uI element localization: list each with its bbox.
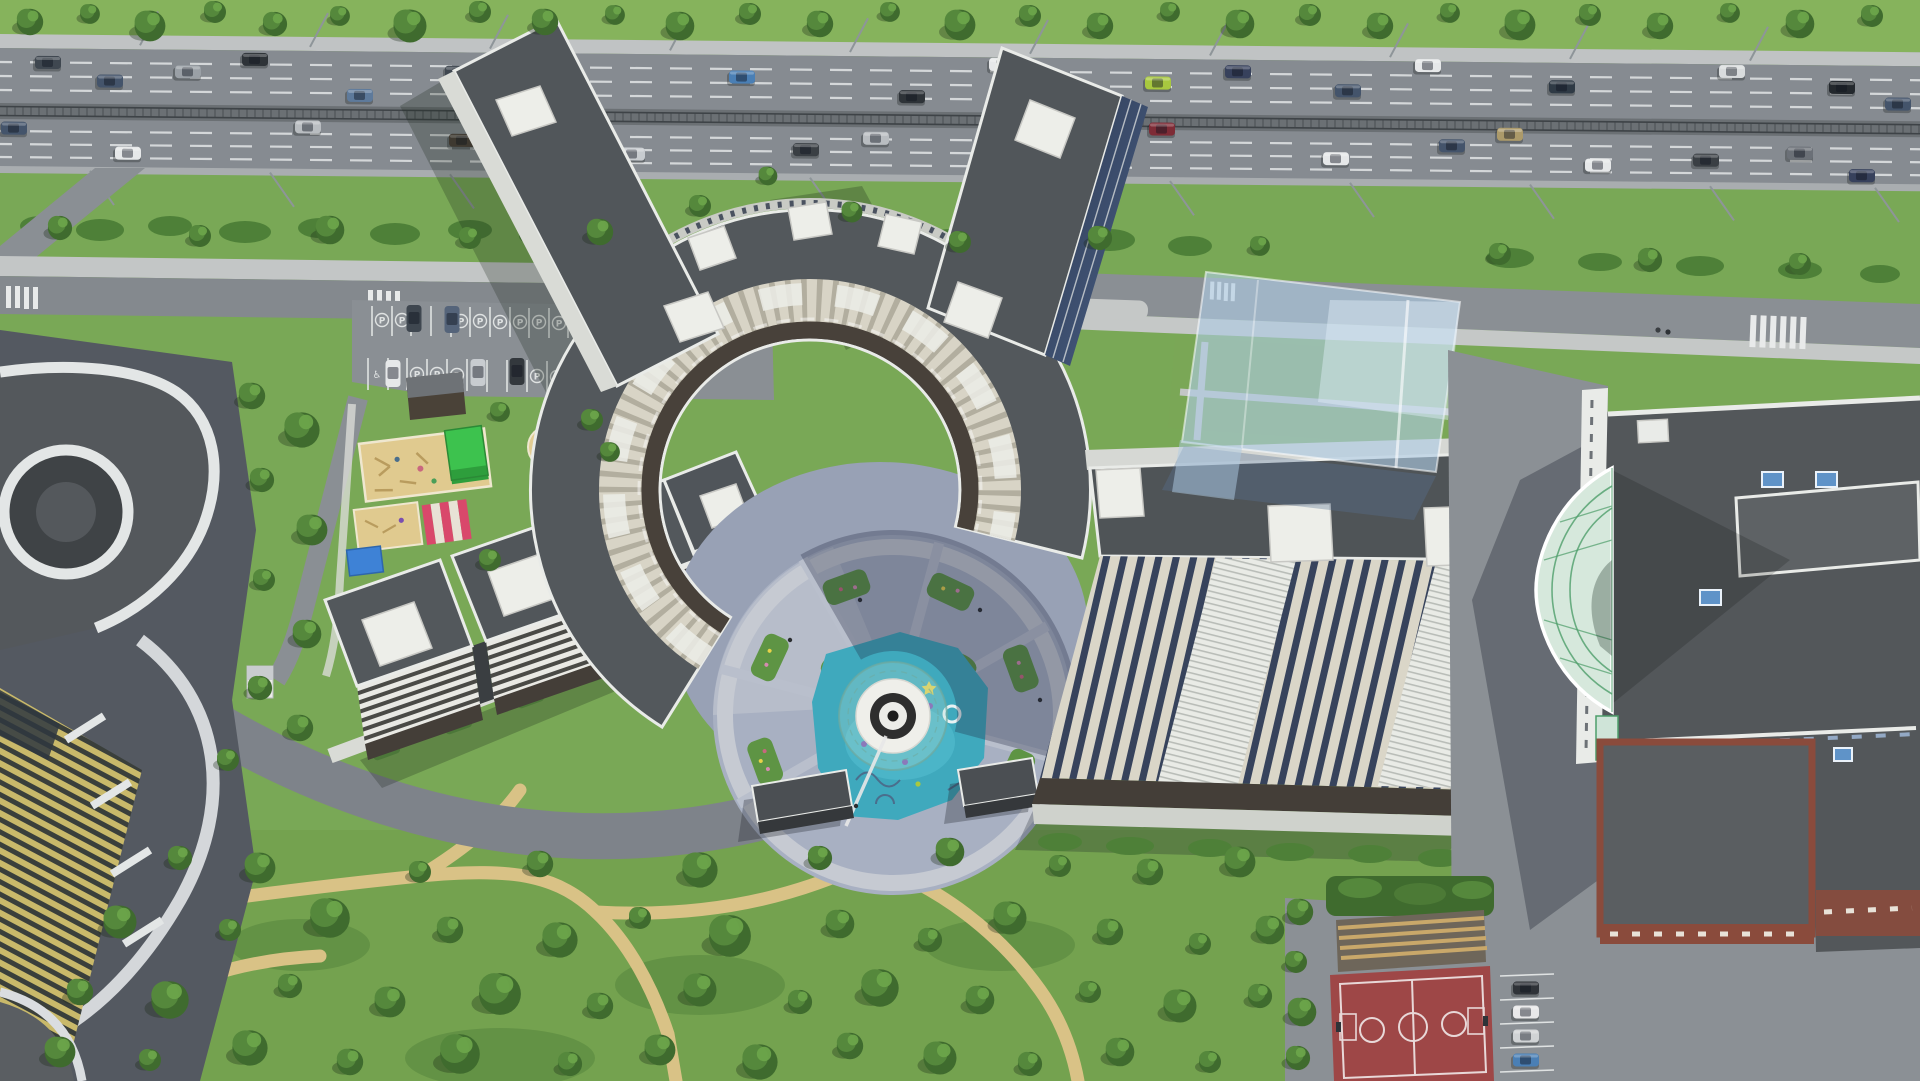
parking-spot-marking: P: [379, 317, 386, 327]
future-phase-massing: [1162, 272, 1460, 520]
car: [1437, 139, 1465, 155]
basketball-court: [1330, 966, 1494, 1081]
car: [1827, 81, 1855, 97]
utility-shed: [406, 372, 466, 420]
car: [1883, 97, 1911, 113]
car: [791, 143, 819, 159]
car: [95, 74, 123, 90]
pink-striped-canopy: [422, 499, 472, 545]
car: [1847, 169, 1875, 185]
hoop: [1483, 1016, 1488, 1026]
parking-spot-marking: P: [399, 317, 406, 327]
car: [1785, 146, 1813, 162]
parked-car: [445, 306, 460, 333]
scene-canvas: P P P P P P P P P P P P P P P P P P ♿ ♿: [0, 0, 1920, 1081]
parked-car: [1511, 1006, 1539, 1022]
car: [1147, 122, 1175, 138]
car: [1547, 80, 1575, 96]
car: [1717, 65, 1745, 81]
car: [1691, 154, 1719, 170]
car: [1223, 65, 1251, 81]
accessible-spot-marking: ♿: [373, 370, 382, 381]
parking-spot-marking: P: [477, 318, 484, 328]
parked-car: [407, 305, 422, 332]
car: [240, 53, 268, 69]
pedestrian: [1655, 327, 1660, 332]
car: [727, 70, 755, 86]
parked-car: [1511, 1030, 1539, 1046]
sandbox-small: [354, 502, 423, 551]
aerial-render: P P P P P P P P P P P P P P P P P P ♿ ♿: [0, 0, 1920, 1081]
hoop: [1336, 1022, 1341, 1032]
parked-car: [1511, 1054, 1539, 1070]
parked-car: [471, 359, 486, 386]
car: [861, 132, 889, 148]
car: [33, 56, 61, 72]
car: [0, 121, 27, 137]
car: [1583, 159, 1611, 175]
car: [1333, 84, 1361, 100]
parking-spot-marking: P: [497, 319, 504, 329]
pedestrian: [1665, 329, 1670, 334]
parked-car: [510, 358, 525, 385]
blue-canopy: [347, 546, 384, 576]
parked-car: [1511, 982, 1539, 998]
car: [1495, 128, 1523, 144]
car: [173, 65, 201, 81]
car: [293, 120, 321, 136]
car: [897, 90, 925, 106]
bleachers: [1336, 910, 1487, 972]
green-canopy: [445, 426, 489, 485]
car: [1321, 152, 1349, 168]
car: [1143, 76, 1171, 92]
car: [345, 89, 373, 105]
car: [113, 147, 141, 163]
car: [1413, 59, 1441, 75]
west-curved-building: [0, 330, 256, 1081]
parked-car: [386, 360, 401, 387]
